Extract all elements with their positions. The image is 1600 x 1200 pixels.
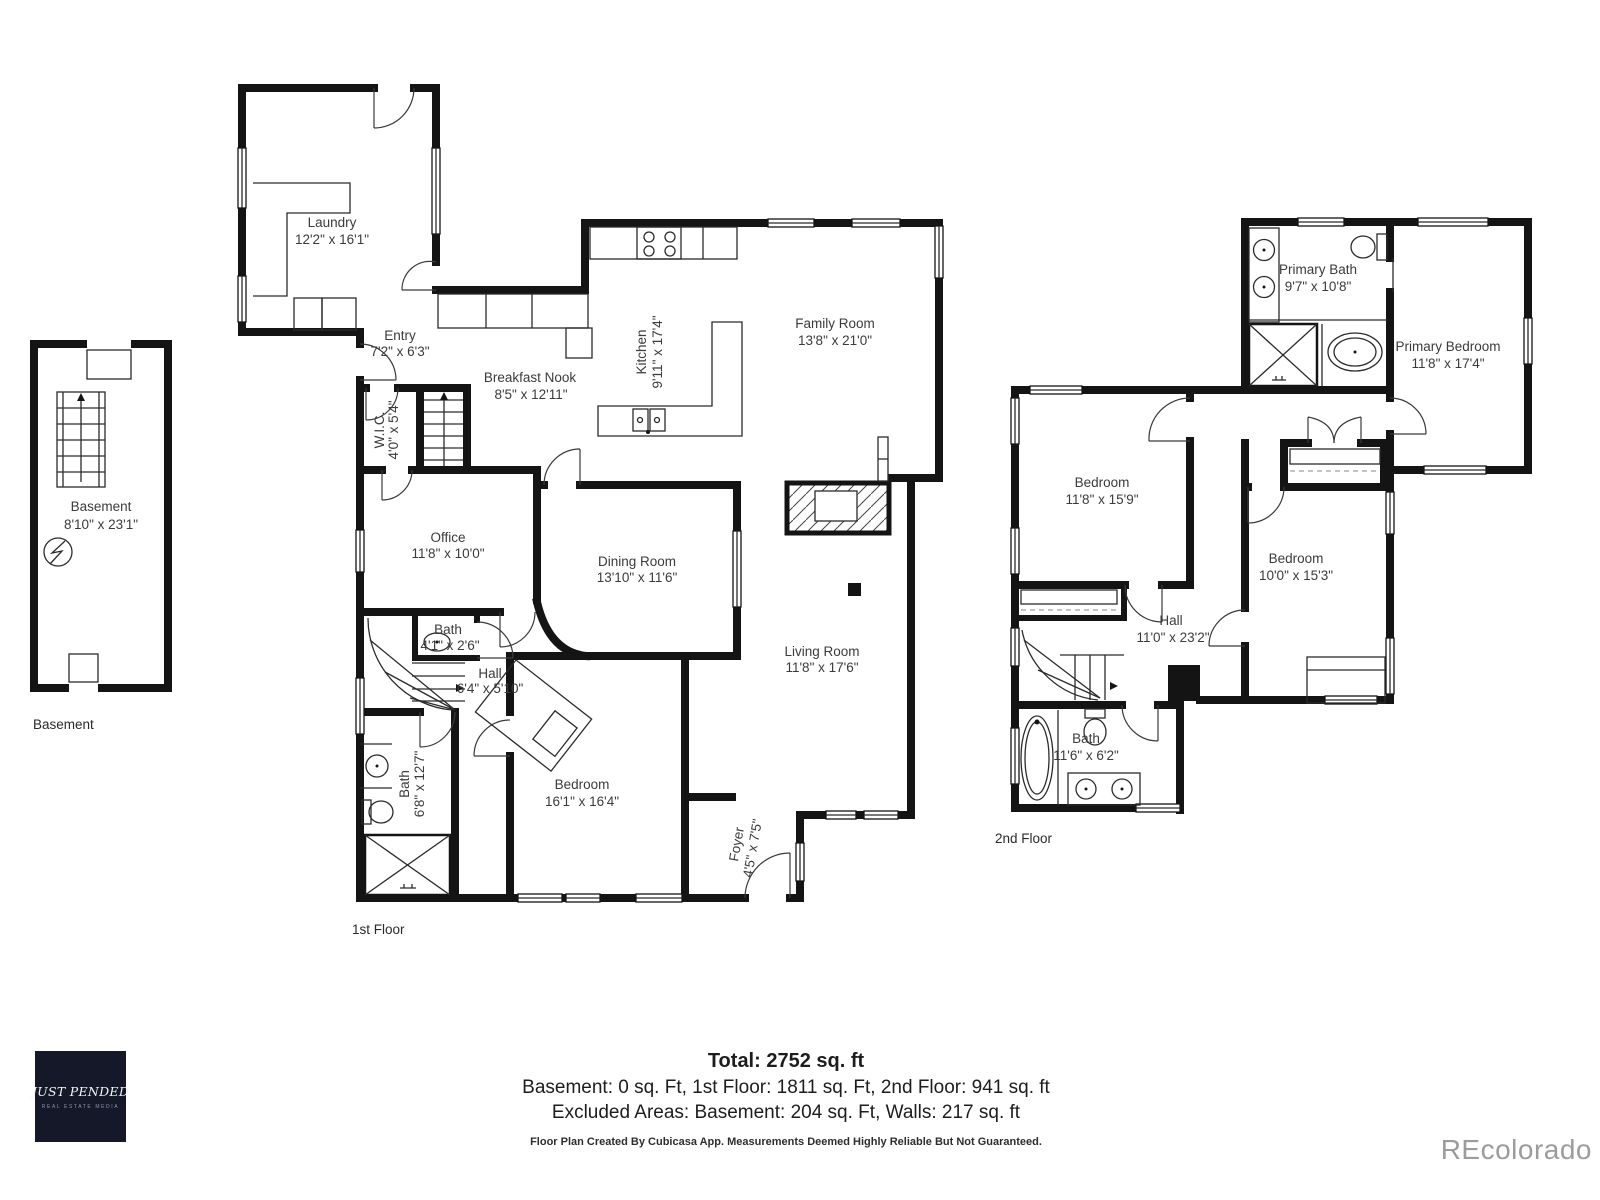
- room-dims-wic: 4'0" x 5'4": [386, 400, 401, 459]
- room-label-hall: Hall: [478, 666, 501, 681]
- room-dims-bedroom: 16'1" x 16'4": [545, 794, 619, 809]
- room-label-basement: Basement: [71, 499, 132, 514]
- room-label-bath-main: Bath: [397, 770, 412, 798]
- watermark-text: REcolorado: [1441, 1134, 1592, 1166]
- room-label-bedroom: Bedroom: [555, 777, 610, 792]
- room-label-dining-room: Dining Room: [598, 554, 676, 569]
- room-label-bedroom-b: Bedroom: [1269, 551, 1324, 566]
- room-label-bath-2: Bath: [1072, 731, 1100, 746]
- room-dims-bath-main: 6'8" x 12'7": [412, 751, 427, 818]
- logo-subtitle: REAL ESTATE MEDIA: [42, 1104, 119, 1110]
- floor-caption-first: 1st Floor: [352, 922, 405, 937]
- room-label-bedroom-a: Bedroom: [1075, 475, 1130, 490]
- summary-block: Total: 2752 sq. ft Basement: 0 sq. Ft, 1…: [0, 1050, 1572, 1148]
- second-floor-plan: Primary Bath 9'7" x 10'8" Primary Bedroo…: [995, 218, 1532, 846]
- room-dims-primary-bedroom: 11'8" x 17'4": [1411, 356, 1484, 371]
- fireplace-icon: [787, 437, 889, 533]
- room-label-primary-bedroom: Primary Bedroom: [1395, 339, 1500, 354]
- logo-title: JUST PENDED: [32, 1084, 129, 1099]
- room-dims-dining-room: 13'10" x 11'6": [597, 570, 678, 585]
- room-label-living-room: Living Room: [784, 644, 859, 659]
- room-label-breakfast-nook: Breakfast Nook: [484, 370, 577, 385]
- room-dims-bedroom-b: 10'0" x 15'3": [1259, 568, 1333, 583]
- room-label-laundry: Laundry: [308, 215, 357, 230]
- floor-plan-drawing: Basement 8'10" x 23'1" Basement: [0, 0, 1600, 1200]
- floor-plan-page: Basement 8'10" x 23'1" Basement: [0, 0, 1600, 1200]
- room-dims-hall: 6'4" x 5'10": [457, 681, 524, 696]
- first-floor-stairs-up-icon: [424, 392, 463, 466]
- floor-caption-second: 2nd Floor: [995, 831, 1053, 846]
- room-dims-bath-powder: 4'1" x 2'6": [420, 638, 479, 653]
- second-floor-stairs-icon: [1022, 630, 1124, 700]
- total-area-text: Total: 2752 sq. ft: [0, 1050, 1572, 1073]
- room-dims-entry: 7'2" x 6'3": [370, 344, 429, 359]
- electrical-panel-icon: [44, 538, 72, 566]
- room-label-office: Office: [430, 530, 465, 545]
- primary-bath-fixtures: [1249, 228, 1388, 386]
- room-dims-family-room: 13'8" x 21'0": [798, 333, 872, 348]
- room-label-entry: Entry: [384, 328, 416, 343]
- excluded-areas-text: Excluded Areas: Basement: 204 sq. Ft, Wa…: [0, 1102, 1572, 1124]
- disclaimer-text: Floor Plan Created By Cubicasa App. Meas…: [0, 1136, 1572, 1148]
- room-label-primary-bath: Primary Bath: [1279, 262, 1357, 277]
- room-dims-living-room: 11'8" x 17'6": [785, 660, 858, 675]
- room-label-hall-2: Hall: [1159, 613, 1182, 628]
- room-dims-foyer: 4'5" x 7'5": [740, 818, 765, 879]
- living-room-marker: [848, 583, 861, 596]
- brand-logo: JUST PENDED REAL ESTATE MEDIA: [35, 1051, 126, 1142]
- chimney-block: [1168, 665, 1200, 701]
- room-dims-bedroom-a: 11'8" x 15'9": [1065, 492, 1138, 507]
- basement-stairs-icon: [57, 392, 105, 487]
- floor-areas-text: Basement: 0 sq. Ft, 1st Floor: 1811 sq. …: [0, 1077, 1572, 1099]
- room-dims-hall-2: 11'0" x 23'2": [1136, 630, 1209, 645]
- room-dims-laundry: 12'2" x 16'1": [295, 232, 369, 247]
- room-dims-office: 11'8" x 10'0": [411, 546, 484, 561]
- kitchen-counters: [438, 227, 742, 436]
- room-dims-breakfast-nook: 8'5" x 12'11": [494, 387, 567, 402]
- room-dims-bath-2: 11'6" x 6'2": [1053, 748, 1119, 763]
- laundry-cabinets: [253, 183, 356, 330]
- room-label-kitchen: Kitchen: [634, 329, 649, 374]
- basement-plan: Basement 8'10" x 23'1" Basement: [33, 338, 168, 732]
- first-floor-plan: Laundry 12'2" x 16'1" Entry 7'2" x 6'3" …: [238, 88, 943, 937]
- room-label-bath-powder: Bath: [434, 622, 462, 637]
- floor-caption-basement: Basement: [33, 717, 94, 732]
- room-label-family-room: Family Room: [795, 316, 875, 331]
- room-dims-primary-bath: 9'7" x 10'8": [1285, 279, 1352, 294]
- first-floor-bath-fixtures: [360, 744, 450, 895]
- room-label-wic: W.I.C.: [372, 412, 387, 449]
- room-dims-basement: 8'10" x 23'1": [64, 517, 138, 532]
- room-dims-kitchen: 9'11" x 17'4": [650, 315, 665, 388]
